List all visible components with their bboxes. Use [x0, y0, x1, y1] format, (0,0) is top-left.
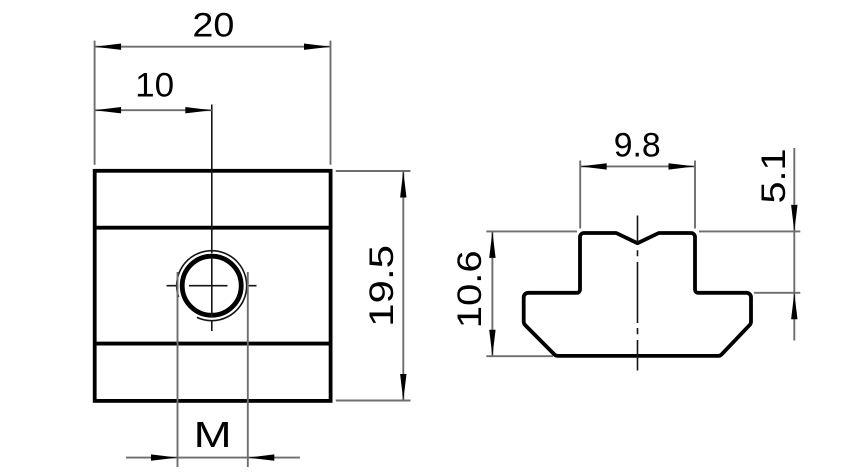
svg-text:5.1: 5.1 [755, 149, 793, 204]
svg-text:10.6: 10.6 [451, 250, 489, 328]
svg-text:9.8: 9.8 [614, 126, 661, 164]
svg-text:M: M [194, 414, 232, 455]
svg-text:20: 20 [192, 7, 234, 45]
svg-text:19.5: 19.5 [363, 245, 401, 327]
svg-text:10: 10 [135, 67, 174, 105]
